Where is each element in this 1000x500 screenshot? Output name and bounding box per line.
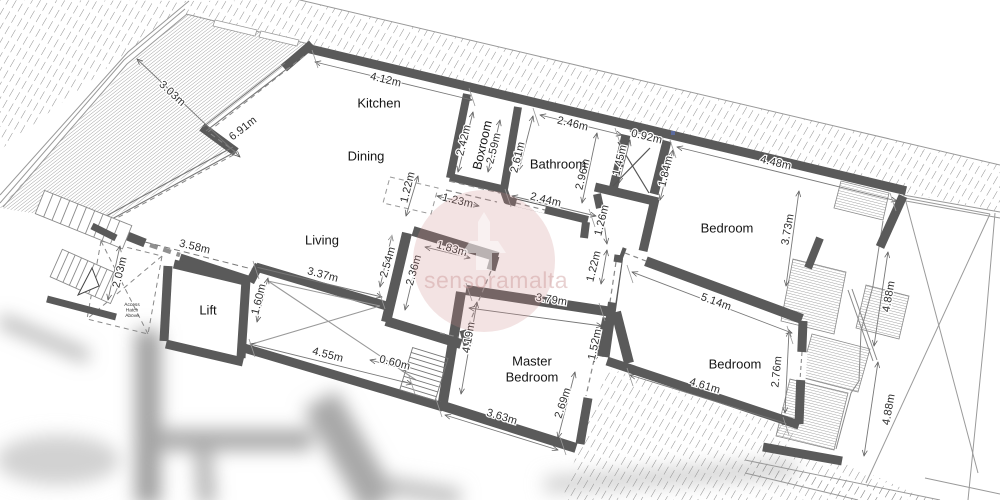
svg-text:Bedroom: Bedroom bbox=[709, 357, 762, 372]
svg-text:Master: Master bbox=[512, 354, 552, 369]
svg-text:2.76m: 2.76m bbox=[769, 355, 784, 388]
svg-text:Access: Access bbox=[124, 302, 140, 308]
svg-text:4.55m: 4.55m bbox=[311, 345, 345, 365]
svg-text:1.60m: 1.60m bbox=[249, 283, 268, 317]
svg-text:Dining: Dining bbox=[348, 149, 385, 164]
svg-text:6.91m: 6.91m bbox=[227, 114, 259, 143]
svg-text:0.60m: 0.60m bbox=[378, 353, 412, 373]
svg-text:Bedroom: Bedroom bbox=[506, 370, 559, 385]
svg-text:Bathroom: Bathroom bbox=[530, 157, 586, 172]
svg-text:1.26m: 1.26m bbox=[592, 204, 611, 238]
svg-text:1.22m: 1.22m bbox=[584, 250, 603, 284]
svg-text:Living: Living bbox=[305, 233, 339, 248]
svg-text:Kitchen: Kitchen bbox=[357, 96, 400, 111]
svg-text:sensoramalta: sensoramalta bbox=[424, 267, 568, 293]
svg-text:2.69m: 2.69m bbox=[553, 386, 574, 420]
svg-text:Hatch: Hatch bbox=[126, 308, 139, 314]
svg-text:2.03m: 2.03m bbox=[110, 256, 129, 290]
svg-text:Lift: Lift bbox=[199, 303, 217, 318]
svg-text:Above: Above bbox=[125, 313, 139, 319]
svg-text:3.73m: 3.73m bbox=[779, 213, 796, 246]
svg-text:Bedroom: Bedroom bbox=[701, 221, 754, 236]
svg-text:3.58m: 3.58m bbox=[178, 238, 212, 257]
svg-text:4.88m: 4.88m bbox=[880, 393, 897, 426]
